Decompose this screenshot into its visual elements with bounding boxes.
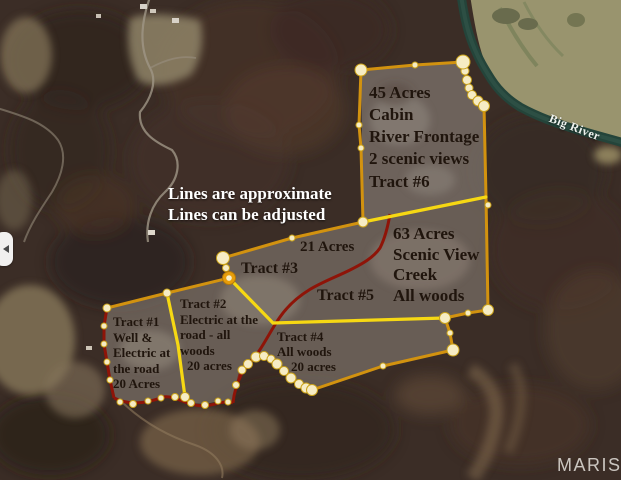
tract1-line: Tract #1 <box>113 314 170 330</box>
tract2-label: Tract #2 Electric at the road - all wood… <box>180 296 258 374</box>
tract5-name: Tract #5 <box>317 288 374 304</box>
tract5-line: Creek <box>393 265 479 286</box>
tract6-line: River Frontage <box>369 126 479 148</box>
tract6-line: Cabin <box>369 104 479 126</box>
tract6-line: 45 Acres <box>369 82 479 104</box>
prev-photo-button[interactable] <box>0 232 13 266</box>
disclaimer-line: Lines can be adjusted <box>168 204 332 225</box>
tract6-name: Tract #6 <box>369 171 479 193</box>
tract1-label: Tract #1 Well & Electric at the road 20 … <box>113 314 170 392</box>
tract1-line: 20 Acres <box>113 376 170 392</box>
tract5-description: 63 Acres Scenic View Creek All woods <box>393 224 479 306</box>
listing-photo-map: 45 Acres Cabin River Frontage 2 scenic v… <box>0 0 621 480</box>
tract4-line: Tract #4 <box>277 329 336 344</box>
disclaimer-note: Lines are approximate Lines can be adjus… <box>168 183 332 225</box>
tract6-line: 2 scenic views <box>369 148 479 170</box>
tract1-line: the road <box>113 361 170 377</box>
tract1-line: Electric at <box>113 345 170 361</box>
tract2-line: road - all <box>180 327 258 343</box>
tract5-line: Scenic View <box>393 245 479 266</box>
tract2-line: Tract #2 <box>180 296 258 312</box>
tract3-name: Tract #3 <box>241 261 298 277</box>
tract4-line: 20 acres <box>277 359 336 374</box>
watermark: MARIS <box>557 455 621 476</box>
tract6-label: 45 Acres Cabin River Frontage 2 scenic v… <box>369 82 479 193</box>
tract5-line: All woods <box>393 286 479 307</box>
tract2-line: 20 acres <box>180 358 258 374</box>
tract3-acreage: 21 Acres <box>300 240 354 255</box>
tract4-line: All woods <box>277 344 336 359</box>
tract4-label: Tract #4 All woods 20 acres <box>277 329 336 374</box>
tract1-line: Well & <box>113 330 170 346</box>
tract5-line: 63 Acres <box>393 224 479 245</box>
disclaimer-line: Lines are approximate <box>168 183 332 204</box>
chevron-left-icon <box>3 245 9 253</box>
tract2-line: woods <box>180 343 258 359</box>
tract2-line: Electric at the <box>180 312 258 328</box>
